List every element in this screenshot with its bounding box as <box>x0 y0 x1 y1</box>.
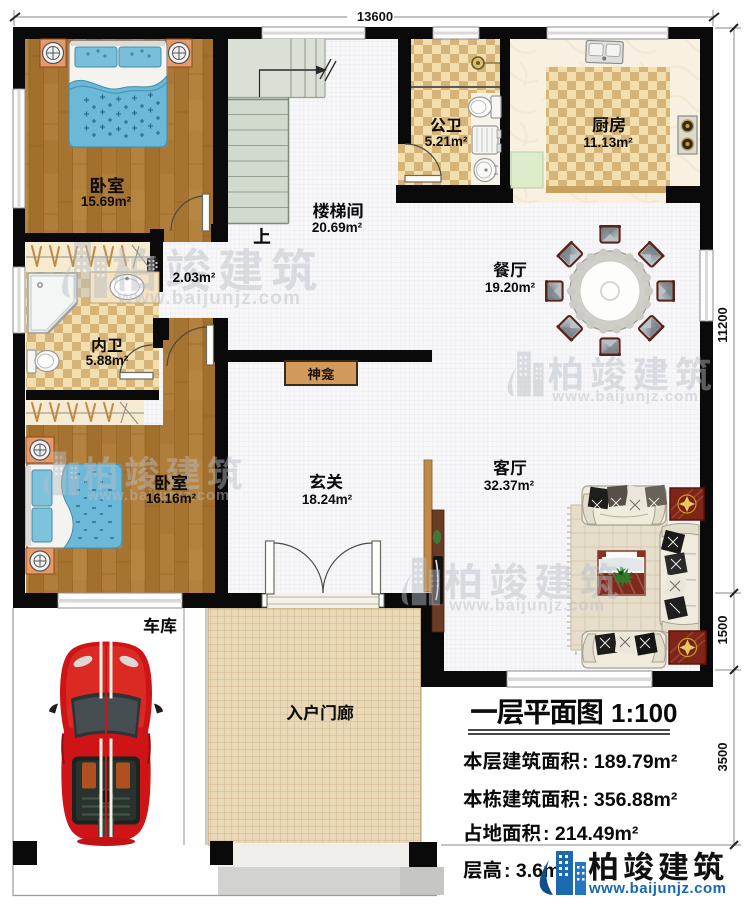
svg-text:18.24m²: 18.24m² <box>302 492 353 507</box>
svg-text:3500: 3500 <box>715 743 730 772</box>
svg-text:16.16m²: 16.16m² <box>146 491 197 506</box>
svg-text:: 189.79m²: : 189.79m² <box>582 751 678 773</box>
svg-text:5.88m²: 5.88m² <box>86 353 129 368</box>
svg-text:19.20m²: 19.20m² <box>485 280 536 295</box>
svg-text:11200: 11200 <box>715 307 730 342</box>
svg-text:www.baijunjz.com: www.baijunjz.com <box>588 880 726 897</box>
svg-text:1500: 1500 <box>715 616 730 645</box>
svg-text:13600: 13600 <box>357 9 393 24</box>
svg-text:15.69m²: 15.69m² <box>81 194 132 209</box>
svg-text:11.13m²: 11.13m² <box>583 135 633 150</box>
svg-text:: 356.88m²: : 356.88m² <box>582 789 678 811</box>
svg-text:2.03m²: 2.03m² <box>173 270 216 285</box>
svg-text:32.37m²: 32.37m² <box>484 478 535 493</box>
svg-text:: 3.6m: : 3.6m <box>504 860 560 882</box>
svg-text:1:100: 1:100 <box>611 698 678 728</box>
svg-text:20.69m²: 20.69m² <box>312 220 363 235</box>
svg-text:5.21m²: 5.21m² <box>425 134 468 149</box>
svg-text:: 214.49m²: : 214.49m² <box>543 823 639 845</box>
